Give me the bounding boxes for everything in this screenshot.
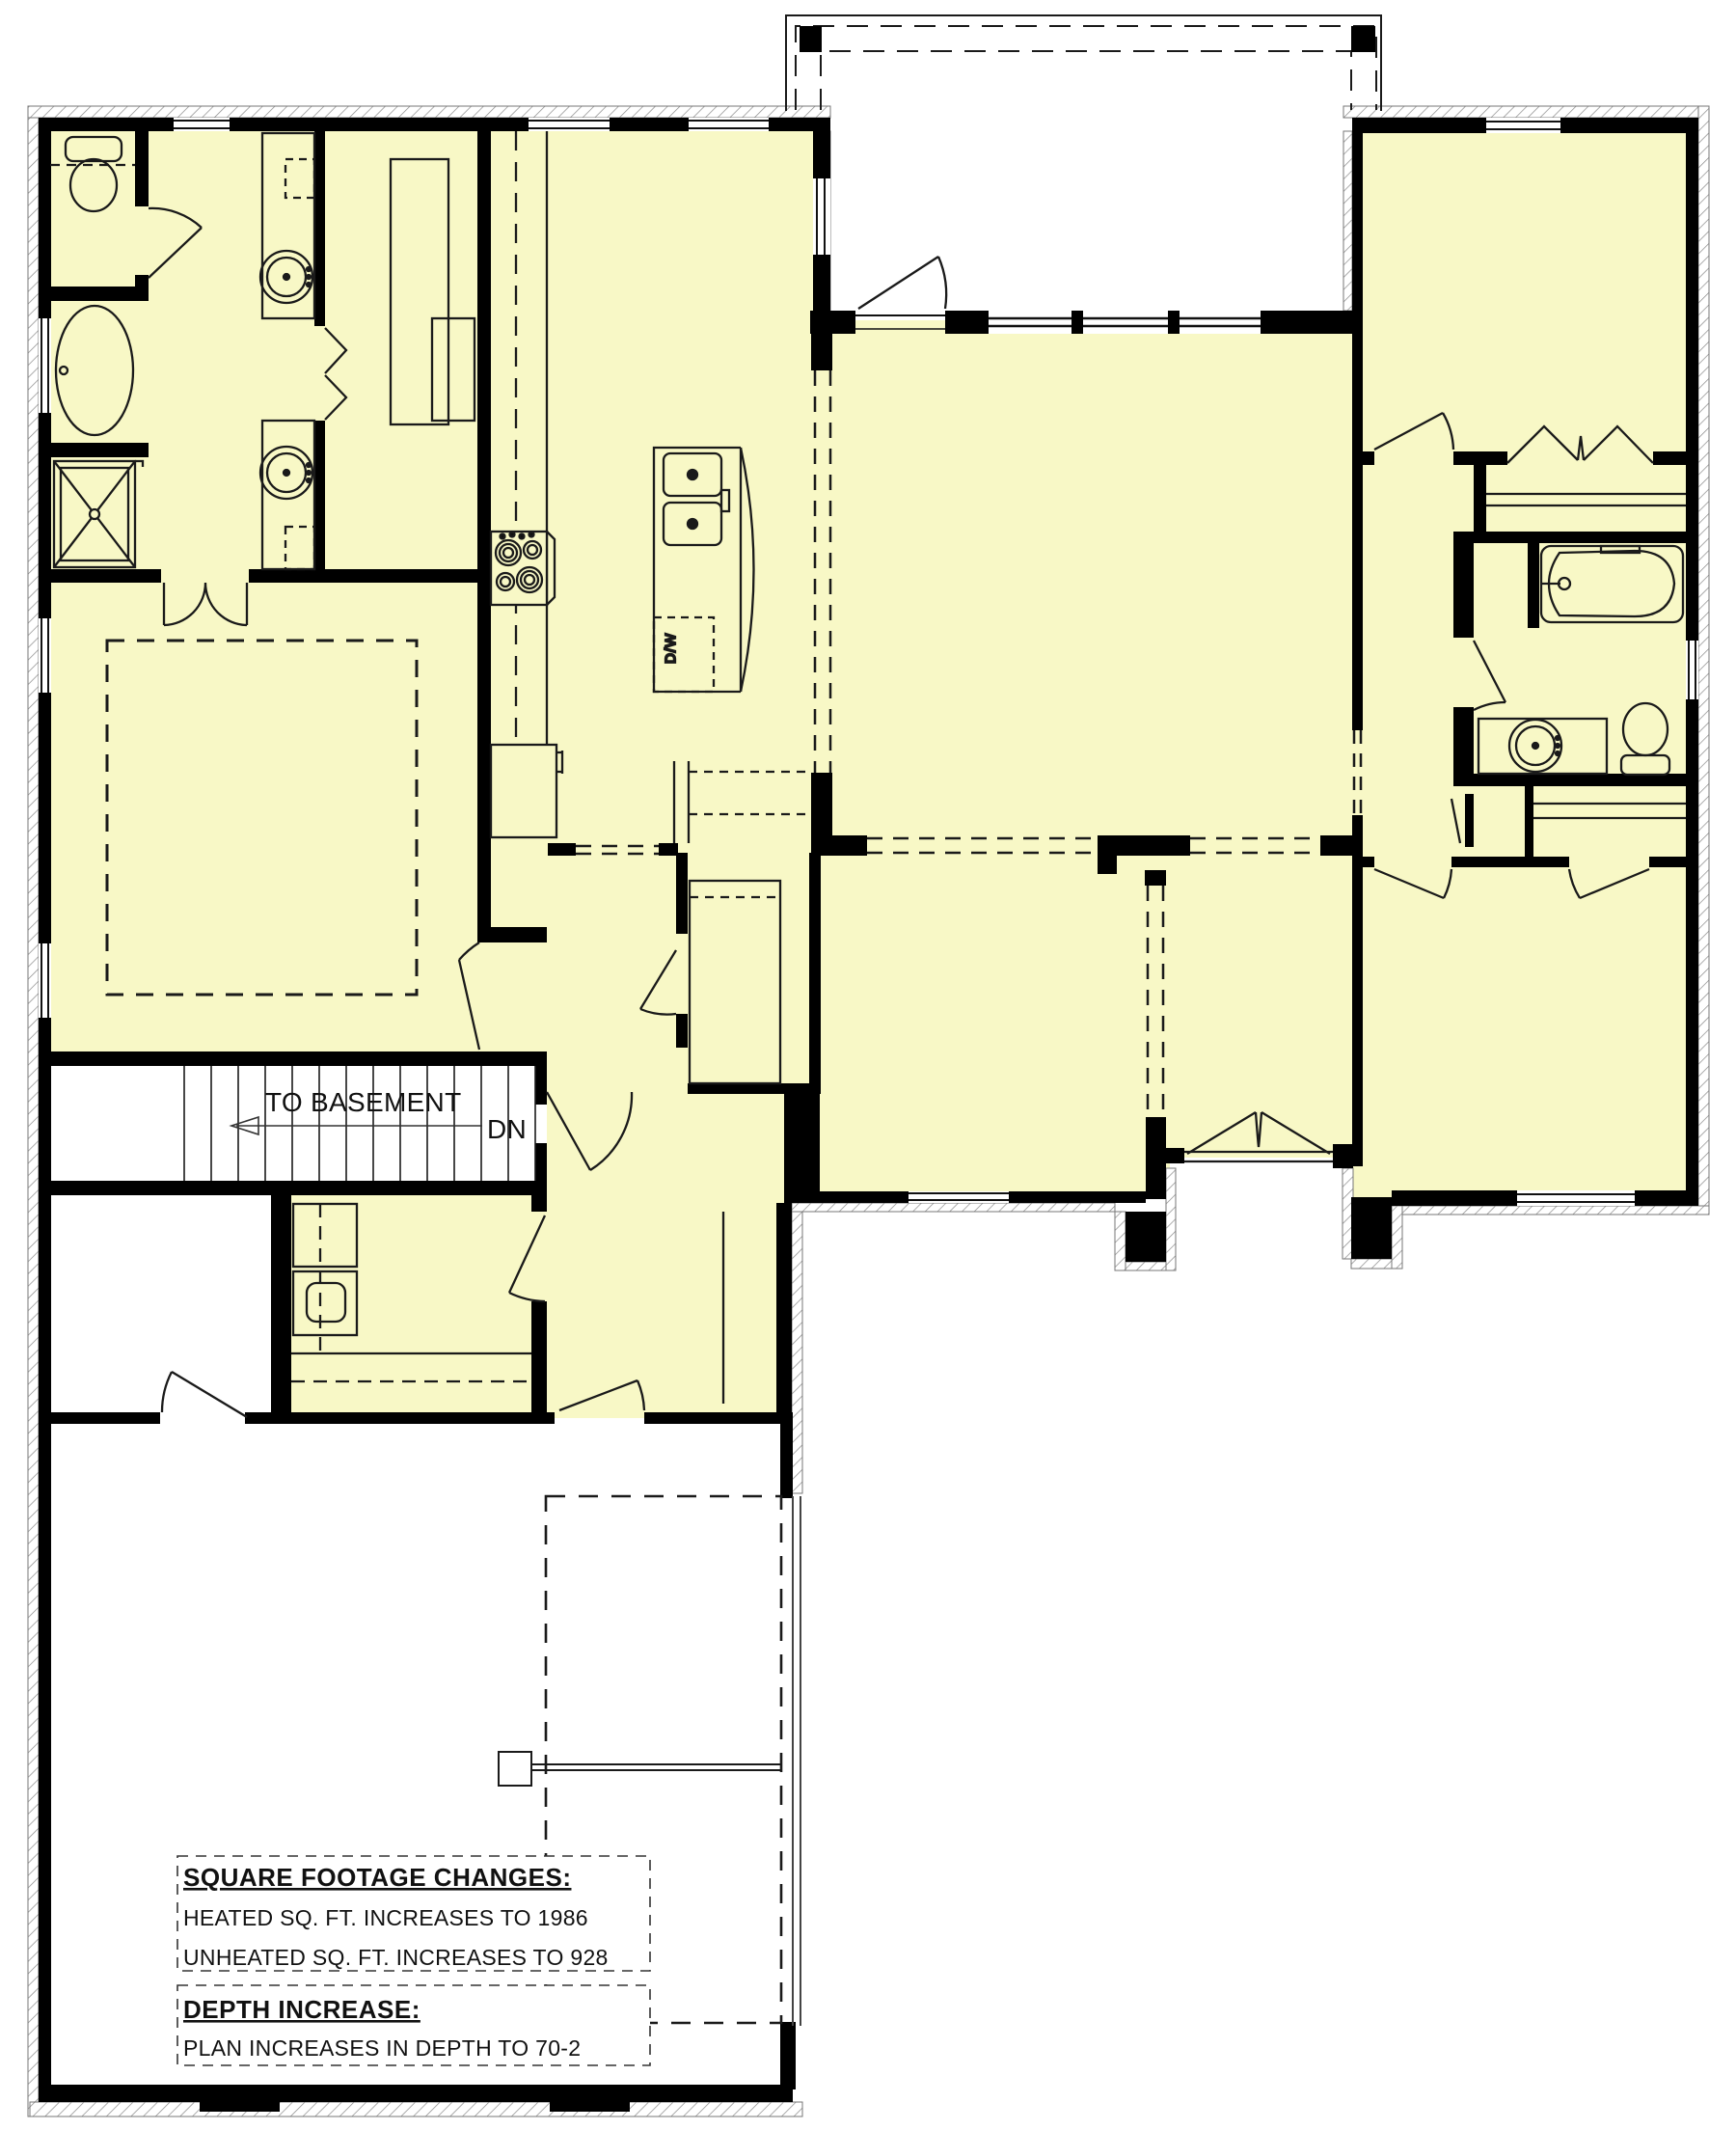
svg-text:SQUARE FOOTAGE CHANGES:: SQUARE FOOTAGE CHANGES:: [183, 1863, 571, 1892]
svg-text:D/W: D/W: [663, 633, 679, 664]
svg-text:TO BASEMENT: TO BASEMENT: [265, 1087, 461, 1117]
svg-text:HEATED SQ. FT. INCREASES TO 19: HEATED SQ. FT. INCREASES TO 1986: [183, 1905, 588, 1930]
svg-text:DEPTH INCREASE:: DEPTH INCREASE:: [183, 1995, 420, 2024]
svg-text:UNHEATED SQ. FT. INCREASES TO: UNHEATED SQ. FT. INCREASES TO 928: [183, 1945, 609, 1970]
svg-text:PLAN INCREASES IN DEPTH TO 70-: PLAN INCREASES IN DEPTH TO 70-2: [183, 2035, 581, 2061]
svg-text:DN: DN: [487, 1114, 527, 1144]
